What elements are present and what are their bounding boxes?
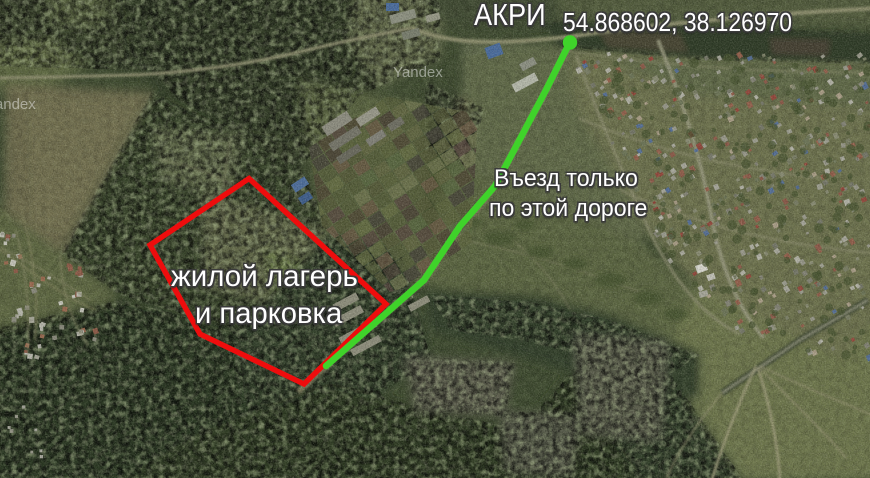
svg-text:Yandex: Yandex: [393, 64, 443, 81]
svg-text:Yandex: Yandex: [0, 96, 36, 113]
